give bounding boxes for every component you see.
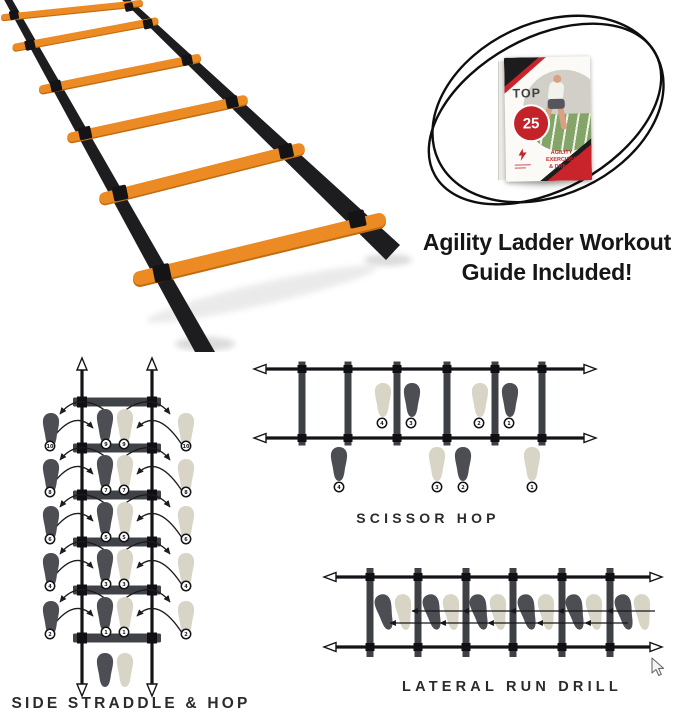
step-badge: 10	[181, 441, 190, 450]
svg-text:3: 3	[104, 582, 108, 588]
step-badge: 2	[45, 629, 54, 638]
footprint-outside	[331, 447, 347, 481]
svg-text:6: 6	[184, 537, 188, 543]
step-badge: 6	[181, 534, 190, 543]
footprint	[468, 593, 492, 632]
footprint-inside	[472, 383, 488, 417]
footprint-outside	[455, 447, 471, 481]
svg-text:4: 4	[337, 485, 341, 491]
svg-text:8: 8	[48, 490, 52, 496]
step-badge: 5	[101, 532, 110, 541]
footprint-inside-right	[117, 597, 133, 631]
footprint	[537, 593, 558, 631]
svg-text:7: 7	[104, 488, 108, 494]
workout-guide-booklet: TOP 25 AGILITY EXERCISES & DRILLS	[498, 55, 594, 187]
svg-text:3: 3	[409, 421, 413, 427]
booklet-brand-mark	[515, 162, 531, 170]
horizontal-ladder	[254, 362, 596, 446]
step-badge: 2	[458, 482, 467, 491]
footprint	[394, 593, 415, 631]
step-badge: 3	[406, 418, 415, 427]
step-badge: 6	[45, 534, 54, 543]
step-badge: 3	[432, 482, 441, 491]
footprint-inside-right	[117, 409, 133, 443]
step-badge: 4	[334, 482, 343, 491]
drill-step-row: 10 9 9 10	[43, 402, 194, 451]
caption-line-2: Guide Included!	[400, 257, 679, 287]
footprint	[633, 593, 654, 631]
mouse-cursor-icon	[648, 656, 668, 680]
step-badge: 4	[377, 418, 386, 427]
svg-text:10: 10	[47, 444, 54, 450]
agility-ladder-photo	[0, 0, 420, 352]
footprint-inside-right	[117, 549, 133, 583]
step-badge: 1	[101, 627, 110, 636]
step-badge: 3	[119, 579, 128, 588]
svg-text:7: 7	[122, 488, 126, 494]
scissor-hop-title: SCISSOR HOP	[356, 510, 499, 526]
footprint-outside	[524, 447, 540, 481]
step-badge: 1	[504, 418, 513, 427]
footprint-inside-left	[97, 597, 113, 631]
scissor-hop-diagram: 4 3 2 1 4 3 2 1 SCISSOR HOP	[240, 350, 610, 535]
footprint	[585, 593, 606, 631]
arrow-right-icon	[650, 573, 662, 582]
step-badge: 5	[119, 532, 128, 541]
step-badge: 8	[181, 487, 190, 496]
svg-text:1: 1	[104, 630, 108, 636]
svg-text:9: 9	[104, 442, 108, 448]
svg-text:4: 4	[380, 421, 384, 427]
svg-text:2: 2	[461, 485, 465, 491]
step-badge: 2	[474, 418, 483, 427]
side-straddle-title: SIDE STRADDLE & HOP	[11, 695, 250, 712]
svg-text:6: 6	[48, 537, 52, 543]
footprint	[613, 593, 637, 632]
footprint	[516, 593, 540, 632]
arrow-left-icon	[254, 434, 266, 443]
footprint-inside-right	[117, 502, 133, 536]
footprint	[373, 593, 397, 632]
footprint-inside-left	[97, 455, 113, 489]
arrow-right-icon	[650, 643, 662, 652]
booklet-subtitle: AGILITY EXERCISES & DRILLS	[536, 149, 588, 171]
vertical-ladder	[73, 358, 161, 696]
footprint-inside-left	[97, 409, 113, 443]
footprint	[489, 593, 510, 631]
svg-text:3: 3	[122, 582, 126, 588]
lateral-run-drill-diagram: LATERAL RUN DRILL	[315, 555, 679, 705]
lateral-run-title: LATERAL RUN DRILL	[402, 679, 622, 695]
drill-step-row: 2 1 1 2	[43, 590, 194, 639]
step-badge: 1	[527, 482, 536, 491]
arrow-up-icon	[147, 358, 157, 370]
arrow-right-icon	[584, 365, 596, 374]
svg-text:1: 1	[530, 485, 534, 491]
caption-line-1: Agility Ladder Workout	[400, 227, 679, 257]
footprint-inside	[502, 383, 518, 417]
svg-text:3: 3	[435, 485, 439, 491]
step-badge: 10	[45, 441, 54, 450]
svg-text:2: 2	[48, 632, 52, 638]
guide-caption: Agility Ladder Workout Guide Included!	[400, 227, 679, 287]
footprint-inside-left	[97, 502, 113, 536]
drill-step-row: 4 3 3 4	[43, 542, 194, 591]
booklet-top-label: TOP	[512, 86, 541, 100]
svg-text:2: 2	[184, 632, 188, 638]
svg-text:9: 9	[122, 442, 126, 448]
svg-text:5: 5	[122, 535, 126, 541]
svg-text:5: 5	[104, 535, 108, 541]
outside-footprints: 4 3 2 1	[331, 447, 540, 492]
svg-text:4: 4	[48, 584, 52, 590]
svg-text:1: 1	[122, 630, 126, 636]
step-badge: 9	[101, 439, 110, 448]
footprint-outside	[429, 447, 445, 481]
footprint-inside-left	[97, 549, 113, 583]
step-badge: 7	[119, 485, 128, 494]
start-position-feet	[97, 653, 133, 687]
booklet-cover: TOP 25 AGILITY EXERCISES & DRILLS	[504, 56, 592, 181]
footprint-inside-right	[117, 653, 133, 687]
svg-text:1: 1	[507, 421, 511, 427]
footprint	[421, 593, 445, 632]
svg-text:2: 2	[477, 421, 481, 427]
step-badge: 3	[101, 579, 110, 588]
svg-text:10: 10	[183, 444, 190, 450]
footprint-inside	[375, 383, 391, 417]
arrow-up-icon	[77, 358, 87, 370]
step-badge: 1	[119, 627, 128, 636]
step-badge: 9	[119, 439, 128, 448]
step-badge: 8	[45, 487, 54, 496]
svg-text:8: 8	[184, 490, 188, 496]
arrow-left-icon	[254, 365, 266, 374]
footprint-inside	[404, 383, 420, 417]
arrow-left-icon	[324, 643, 336, 652]
svg-text:4: 4	[184, 584, 188, 590]
footprint-inside-left	[97, 653, 113, 687]
ladder-rungs	[4, 3, 379, 280]
drill-step-row: 8 7 7 8	[43, 448, 194, 497]
step-badge: 4	[181, 581, 190, 590]
footprint	[564, 593, 588, 632]
drill-step-row: 6 5 5 6	[43, 495, 194, 544]
footprint-inside-right	[117, 455, 133, 489]
arrow-right-icon	[584, 434, 596, 443]
step-badge: 7	[101, 485, 110, 494]
side-straddle-hop-diagram: 10 9 9 10 8 7 7 8	[0, 350, 270, 713]
product-image: TOP 25 AGILITY EXERCISES & DRILLS Agilit…	[0, 0, 679, 713]
arrow-left-icon	[324, 573, 336, 582]
step-badge: 4	[45, 581, 54, 590]
step-badge: 2	[181, 629, 190, 638]
footprint	[442, 593, 463, 631]
